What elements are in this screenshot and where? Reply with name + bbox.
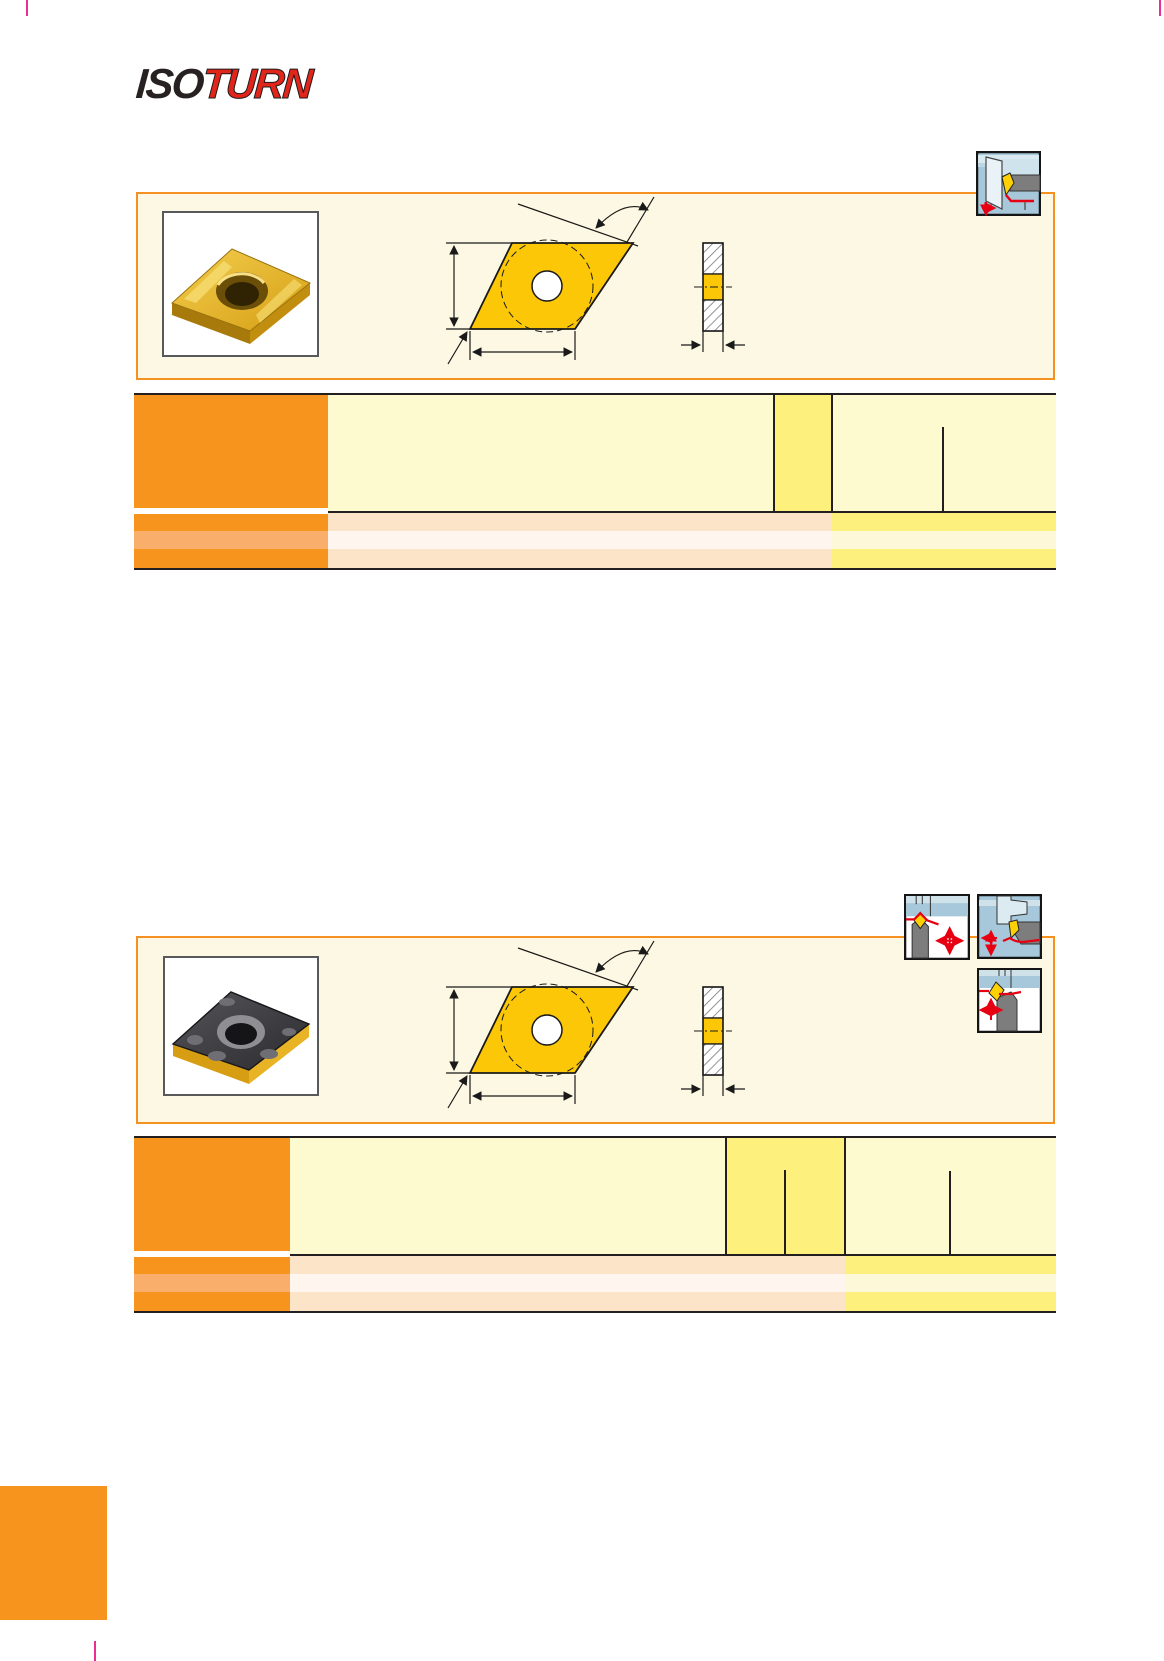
insert-photo-black bbox=[163, 956, 319, 1096]
back-turning-application-icon bbox=[977, 968, 1042, 1033]
external-turning-application-icon bbox=[977, 894, 1042, 959]
insert-panel-2 bbox=[136, 936, 1055, 1124]
table1-row3-values bbox=[328, 549, 832, 568]
brand-logo-turn: TURN bbox=[201, 60, 313, 107]
brand-logo: ISOTURN bbox=[134, 60, 312, 108]
table2-row3-designation bbox=[134, 1292, 290, 1311]
insert-photo-gold bbox=[162, 211, 319, 357]
table2-row2-values bbox=[290, 1274, 845, 1292]
table2-row2-designation bbox=[134, 1274, 290, 1292]
table1-row1-values bbox=[328, 513, 832, 531]
table1-header-designation-block bbox=[134, 395, 328, 508]
table2-header-dimensions-area bbox=[290, 1138, 726, 1254]
brand-logo-iso: ISO bbox=[134, 60, 204, 107]
table1-row1-grades bbox=[832, 513, 1056, 531]
table1-row3-grades bbox=[832, 549, 1056, 568]
table1-row2-values bbox=[328, 531, 832, 549]
profiling-application-icon bbox=[904, 894, 970, 960]
table2-row3-values bbox=[290, 1292, 845, 1311]
table2-row1-values bbox=[290, 1256, 845, 1274]
table1-row2-grades bbox=[832, 531, 1056, 549]
page-corner-tab bbox=[0, 1486, 107, 1620]
gold-insert-image bbox=[164, 213, 317, 355]
internal-boring-application-icon bbox=[976, 151, 1041, 216]
table2-row2-grades bbox=[845, 1274, 1056, 1292]
crop-mark-bottom bbox=[94, 1641, 96, 1661]
table1-row3-designation bbox=[134, 549, 328, 568]
table1-bottom-rule bbox=[134, 568, 1056, 570]
table2-header-designation-block bbox=[134, 1138, 290, 1251]
table1-row2-designation bbox=[134, 531, 328, 549]
table2-row3-grades bbox=[845, 1292, 1056, 1311]
table1-row1-designation bbox=[134, 514, 328, 531]
insert-table-1 bbox=[134, 393, 1056, 570]
insert-panel-1 bbox=[136, 192, 1055, 380]
table1-header-grades-area bbox=[832, 395, 1056, 511]
crop-mark-top-left bbox=[26, 0, 28, 16]
table2-bottom-rule bbox=[134, 1311, 1056, 1313]
table1-header-highlight-column bbox=[774, 395, 832, 511]
table2-row1-grades bbox=[845, 1256, 1056, 1274]
black-insert-image bbox=[165, 958, 317, 1094]
table2-row1-designation bbox=[134, 1257, 290, 1274]
insert-table-2 bbox=[134, 1136, 1056, 1313]
crop-mark-top-right bbox=[1159, 0, 1161, 16]
table1-header-dimensions-area bbox=[328, 395, 774, 511]
